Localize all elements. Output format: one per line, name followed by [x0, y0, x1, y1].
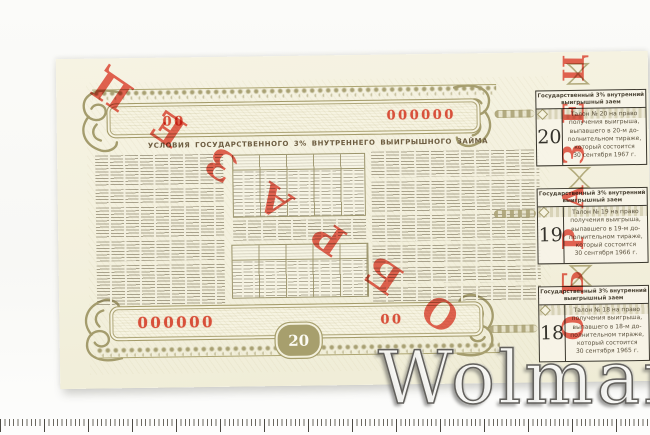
- denomination-badge: 20: [277, 324, 319, 356]
- microtext-paragraph: [97, 264, 226, 306]
- microtext-paragraph: [96, 206, 224, 238]
- coupon-header: Государственный 3% внутренний выигрышный…: [538, 188, 647, 208]
- microtext-paragraph: [371, 149, 539, 177]
- microtext-paragraph: [96, 188, 224, 204]
- coupon-header: Государственный 3% внутренний выигрышный…: [536, 90, 645, 110]
- chain-ornament: [494, 209, 536, 218]
- wolmar-watermark: Wolmar: [378, 342, 650, 415]
- chain-ornament: [489, 324, 537, 333]
- photo-ruler: [0, 419, 650, 435]
- microtext-paragraph: [96, 240, 224, 262]
- serial-bottom-left: 000000: [137, 313, 215, 332]
- photo-backdrop: 00 000000 000000 00 УСЛОВИЯ ГОСУДАРСТВЕН…: [0, 0, 650, 435]
- coupon-talon-19: Государственный 3% внутренний выигрышный…: [537, 187, 649, 265]
- microtext-paragraph: [371, 179, 539, 211]
- chain-ornament: [494, 109, 534, 118]
- coupon-talon-20: Государственный 3% внутренний выигрышный…: [535, 89, 647, 167]
- serial-top-right: 000000: [386, 108, 455, 124]
- serial-bottom-right: 00: [380, 312, 403, 327]
- specimen-stamp-vertical: ОБРАЗЕЦ: [559, 70, 589, 340]
